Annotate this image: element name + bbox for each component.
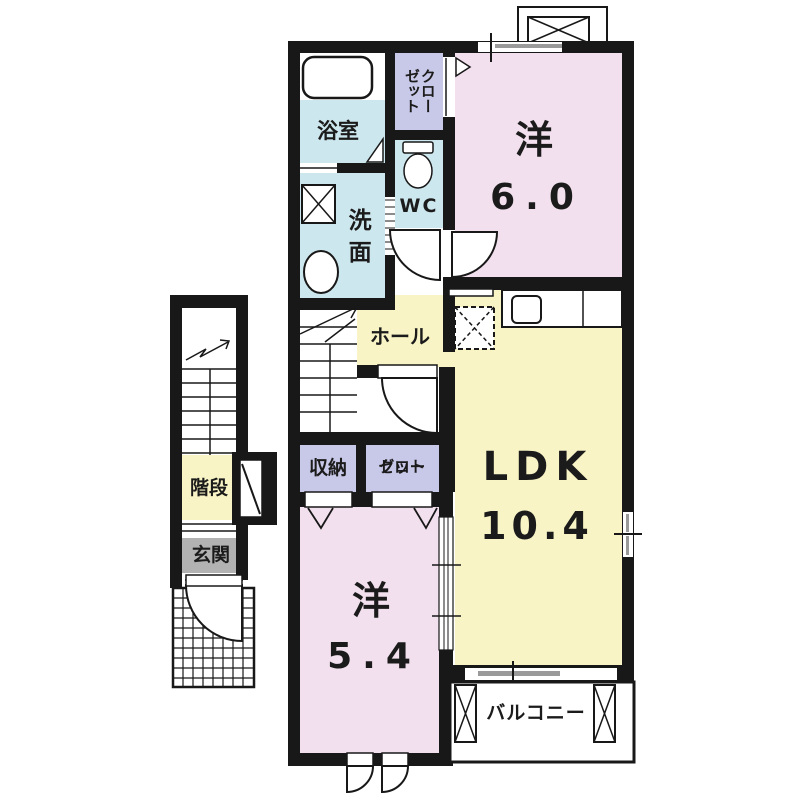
annex-entry-door-box (232, 452, 277, 525)
balcony-pillar-right (594, 685, 615, 742)
wall-left (288, 41, 300, 766)
balcony-label: バルコニー (486, 704, 586, 724)
closet-upper-label: クロー ゼット (403, 69, 435, 114)
door-hall (378, 365, 437, 433)
balcony-pillar-left (455, 685, 476, 742)
washbasin-icon (304, 251, 338, 293)
wall-right (622, 41, 634, 682)
stairs-lower (182, 340, 236, 455)
bedroom-east-label: 洋 (515, 121, 553, 161)
ldk-label: LDK (483, 446, 594, 488)
wall-top (288, 41, 634, 53)
bathtub-icon (303, 57, 372, 98)
bath-label: 浴室 (317, 120, 359, 142)
wc-label: WC (400, 197, 439, 217)
bedroom-east-size: 6.0 (490, 179, 584, 217)
refrigerator-space (455, 307, 494, 349)
wall-bedroom-ldk (443, 277, 634, 290)
entrance-label: 玄関 (192, 546, 230, 566)
hall-ldk-passage (443, 352, 455, 367)
floor-plan-drawing (0, 0, 800, 800)
bedroom-south-label: 洋 (352, 582, 390, 622)
bedroom-south-room (300, 507, 439, 753)
staircase-label: 階段 (190, 479, 228, 499)
bedroom-south-size: 5.4 (327, 638, 421, 676)
annex-wall-right (236, 295, 248, 452)
hall-label: ホール (370, 327, 430, 348)
annex-wall-left (170, 295, 182, 588)
storage-label: 収納 (309, 459, 347, 479)
door-wc (390, 230, 440, 280)
ldk-size: 10.4 (480, 507, 594, 547)
washroom-label: 洗面 (345, 208, 369, 272)
toilet-icon (403, 142, 433, 188)
floor-plan: 浴室 洗面 WC クロー ゼット 洋 6.0 ホール LDK 10.4 収納 ク… (0, 0, 800, 800)
kitchen-sink-icon (512, 296, 541, 323)
stairs-upper (300, 306, 357, 432)
washing-machine-icon (302, 185, 335, 223)
